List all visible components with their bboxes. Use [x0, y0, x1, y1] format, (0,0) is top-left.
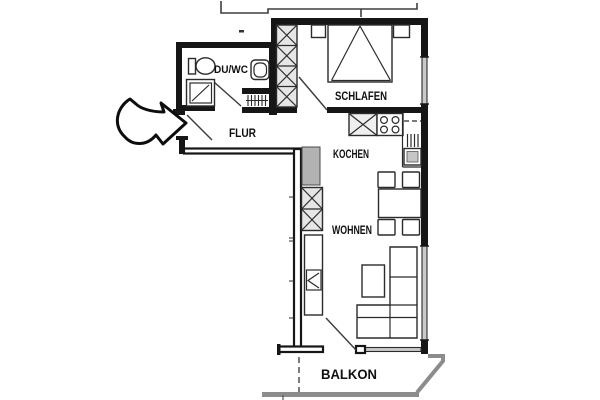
schlafen-kitchen-wall — [327, 107, 428, 113]
doors — [187, 77, 356, 350]
window-schlafen — [422, 57, 427, 104]
living-bottom-wall — [279, 347, 323, 353]
exterior-wall-top — [271, 18, 428, 25]
entrance-arrow-icon — [117, 99, 186, 144]
room-du-wc: DU/WC — [187, 58, 270, 106]
chair — [403, 172, 420, 188]
window-balcony — [365, 348, 421, 352]
duwc-right-wall — [269, 42, 277, 115]
exterior-wall-right-upper — [421, 18, 428, 57]
chair — [403, 220, 420, 236]
floor-plan-drawing: DU/WC SCHLAFEN FLUR — [0, 0, 600, 400]
dimension-tick — [239, 30, 244, 33]
shaft — [302, 147, 320, 185]
room-label-kochen: KOCHEN — [333, 149, 369, 161]
stove — [377, 114, 403, 136]
nightstand-left — [312, 25, 326, 38]
room-label-schlafen: SCHLAFEN — [335, 89, 387, 103]
duwc-left-wall — [176, 42, 182, 115]
window-mullion — [356, 346, 365, 353]
room-label-wohnen: WOHNEN — [332, 225, 372, 237]
room-schlafen: SCHLAFEN — [277, 25, 410, 107]
duwc-top-wall — [176, 42, 272, 48]
wardrobe-schlafen — [277, 25, 298, 107]
balcony-door-swing — [326, 318, 356, 350]
chair — [378, 172, 395, 188]
living-bottom-wall-cap — [277, 344, 281, 355]
chair — [378, 220, 395, 236]
flur-bottom-wall — [184, 149, 301, 154]
entrance-jamb-bottom-cap — [176, 136, 188, 140]
duwc-door-swing — [214, 82, 241, 106]
floor-plan: DU/WC SCHLAFEN FLUR — [0, 0, 600, 400]
coffee-table — [362, 265, 385, 297]
bed — [328, 25, 392, 82]
flur-radiator — [246, 95, 268, 106]
exterior-wall-right-middle — [421, 104, 428, 246]
room-label-balkon: BALKON — [321, 366, 377, 382]
toilet-tank — [189, 59, 196, 75]
dining-set — [378, 172, 421, 235]
room-flur: FLUR — [229, 126, 256, 140]
kitchen-radiator — [408, 134, 419, 147]
toilet-bowl — [196, 58, 215, 74]
exterior-wall-right-lower — [421, 340, 428, 354]
duwc-niche-wall — [242, 88, 269, 94]
room-kochen: KOCHEN — [333, 114, 421, 168]
window-wohnen — [422, 246, 427, 340]
entrance-door-swing — [187, 115, 212, 140]
wardrobe-wohnen — [302, 188, 323, 231]
room-label-flur: FLUR — [229, 126, 256, 140]
balcony-railing-right — [417, 356, 443, 393]
living-left-wall — [294, 149, 301, 347]
nightstand-right — [394, 25, 410, 38]
flur-top-wall — [242, 107, 297, 113]
tv-cabinet — [305, 235, 323, 315]
room-wohnen: WOHNEN — [302, 147, 422, 338]
kitchen-sink — [349, 114, 377, 136]
schlafen-door-swing — [299, 77, 327, 110]
room-label-du-wc: DU/WC — [214, 64, 248, 76]
balcony: BALKON — [262, 356, 443, 400]
dining-table — [379, 189, 422, 218]
fridge — [404, 149, 421, 166]
